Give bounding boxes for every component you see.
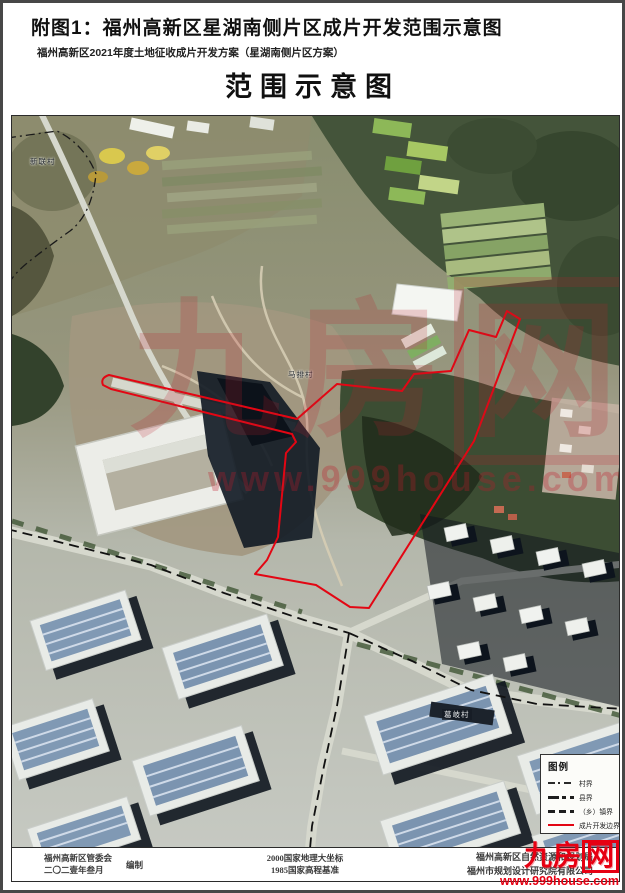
satellite-map: 新联村 马排村 葛岐村 九房网 www.999house.com 图例 村界 县… — [11, 115, 620, 848]
map-title: 范围示意图 — [3, 65, 622, 104]
footer-compiler: 福州高新区管委会 二〇二壹年叁月 编制 — [44, 853, 143, 876]
legend-row: 成片开发边界 — [548, 818, 617, 832]
footer-agencies: 福州高新区自然资源和规划局 福州市规划设计研究院有限公司 — [467, 851, 593, 878]
village-label: 马排村 — [288, 369, 314, 380]
village-label: 葛岐村 — [442, 709, 472, 720]
county-boundary-sample — [548, 796, 574, 799]
legend-row: 村界 — [548, 776, 617, 790]
footer-datum: 2000国家地理大坐标 1985国家高程基准 — [143, 853, 467, 876]
legend-row: 县界 — [548, 790, 617, 804]
document-title: 附图1：福州高新区星湖南侧片区成片开发范围示意图 — [31, 13, 503, 40]
height-datum: 1985国家高程基准 — [143, 865, 467, 876]
compile-date: 二〇二壹年叁月 — [44, 865, 112, 876]
development-boundary-sample — [548, 824, 574, 827]
agency-line1: 福州高新区自然资源和规划局 — [467, 851, 593, 865]
agency-line2: 福州市规划设计研究院有限公司 — [467, 865, 593, 879]
legend-row: （乡）镇界 — [548, 804, 617, 818]
legend-label: （乡）镇界 — [579, 806, 613, 816]
legend-title: 图例 — [548, 759, 617, 773]
coordinate-system: 2000国家地理大坐标 — [143, 853, 467, 864]
document-page: 附图1：福州高新区星湖南侧片区成片开发范围示意图 福州高新区2021年度土地征收… — [0, 0, 625, 893]
document-subtitle: 福州高新区2021年度土地征收成片开发方案（星湖南侧片区方案） — [37, 45, 344, 60]
compile-role: 编制 — [126, 859, 143, 871]
town-boundary-sample — [548, 810, 574, 813]
legend: 图例 村界 县界 （乡）镇界 成片开发边界 — [540, 754, 620, 834]
village-label: 新联村 — [30, 156, 56, 167]
satellite-imagery — [12, 116, 620, 848]
map-footer: 福州高新区管委会 二〇二壹年叁月 编制 2000国家地理大坐标 1985国家高程… — [11, 847, 620, 882]
legend-label: 成片开发边界 — [579, 820, 620, 830]
village-boundary-sample — [548, 782, 574, 784]
legend-label: 县界 — [579, 792, 593, 802]
compiler-org: 福州高新区管委会 — [44, 853, 112, 864]
legend-label: 村界 — [579, 778, 593, 788]
